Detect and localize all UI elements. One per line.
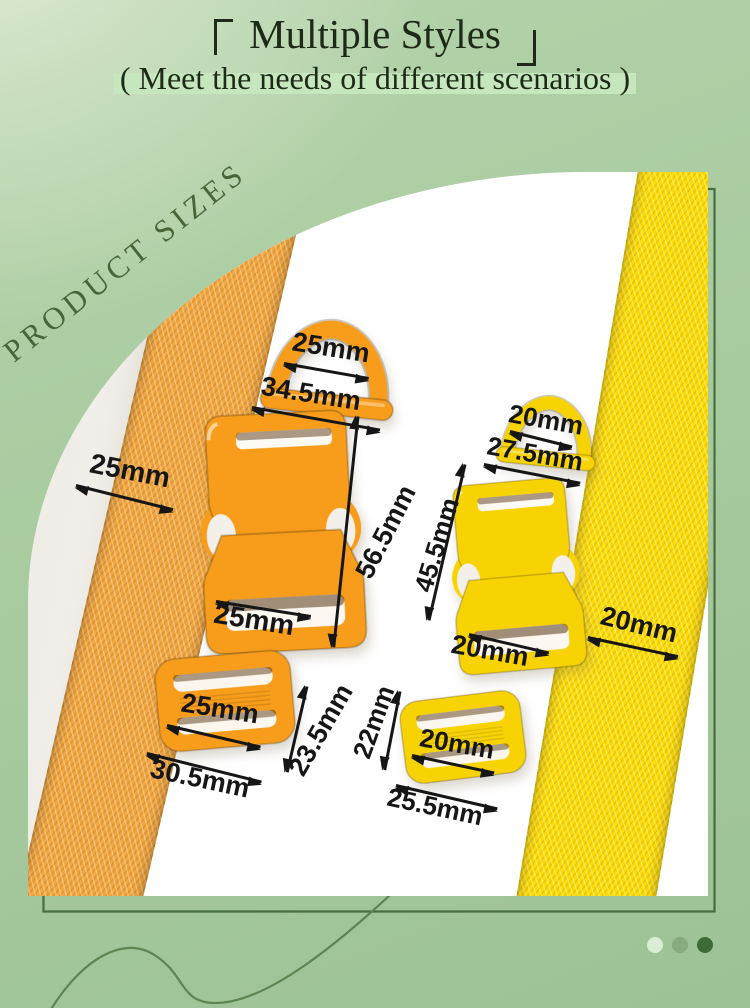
page-subtitle: ( Meet the needs of different scenarios …: [0, 60, 750, 97]
carousel-dot-3[interactable]: [697, 937, 713, 953]
carousel-dot-1[interactable]: [647, 937, 663, 953]
page-background: Multiple Styles ( Meet the needs of diff…: [0, 0, 750, 1008]
carousel-dot-2[interactable]: [672, 937, 688, 953]
page-title-text: Multiple Styles: [249, 11, 501, 57]
corner-bracket-left-icon: [214, 19, 233, 55]
page-title: Multiple Styles: [0, 10, 750, 58]
page-subtitle-text: ( Meet the needs of different scenarios …: [114, 60, 636, 96]
